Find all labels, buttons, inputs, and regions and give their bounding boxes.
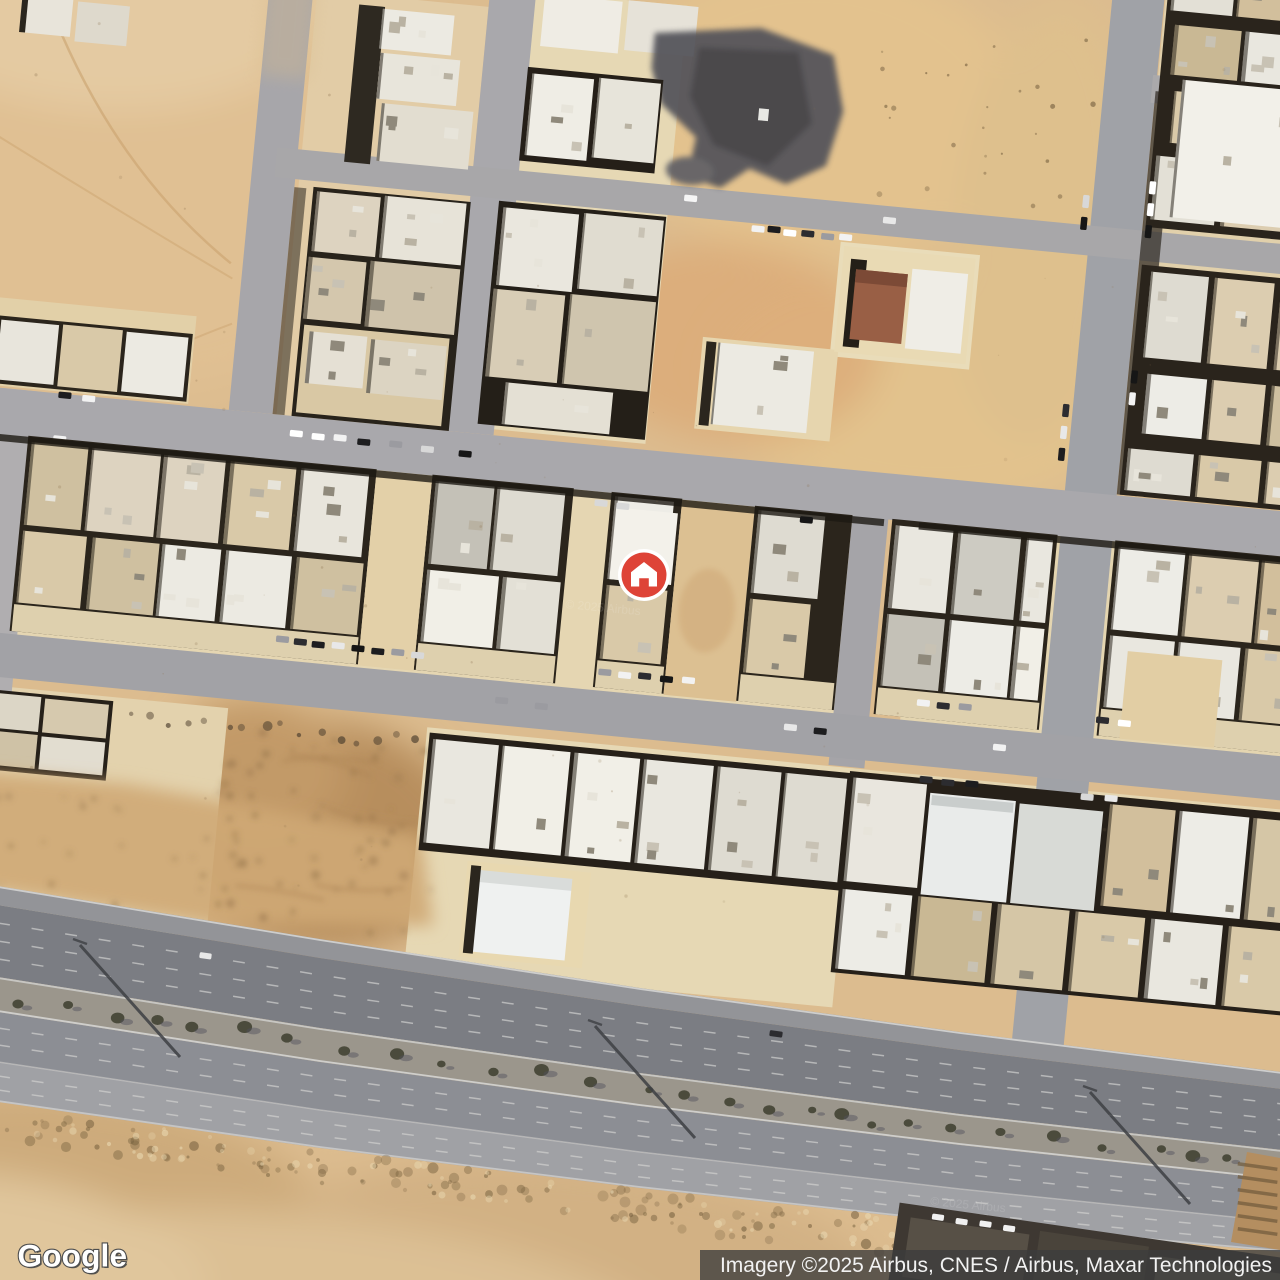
svg-text:Google: Google — [18, 1238, 128, 1274]
svg-text:Imagery ©2025 Airbus, CNES / A: Imagery ©2025 Airbus, CNES / Airbus, Max… — [720, 1254, 1272, 1277]
